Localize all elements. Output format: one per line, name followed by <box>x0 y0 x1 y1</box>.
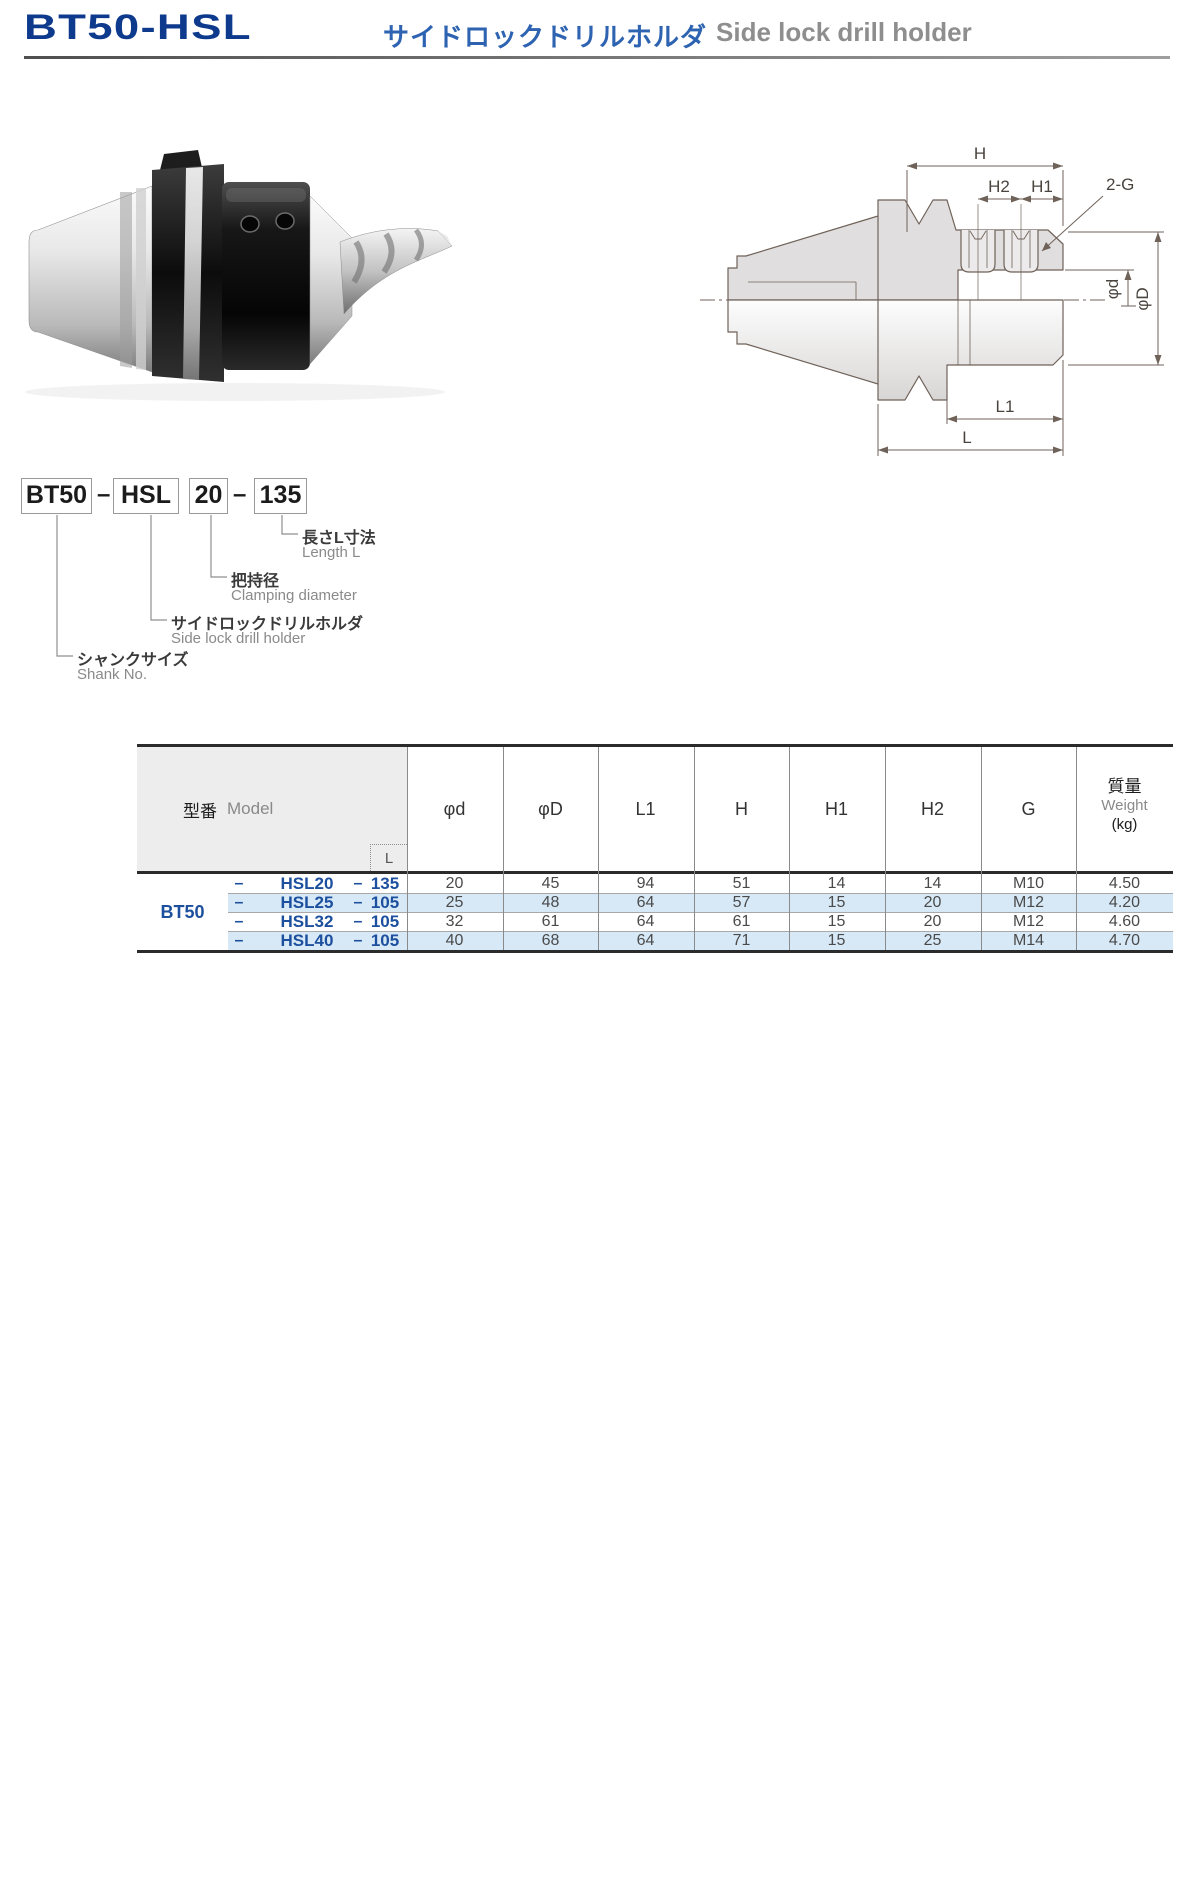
row-dash: – <box>229 931 249 950</box>
dim-label-H2: H2 <box>988 177 1010 196</box>
data-cell: 48 <box>503 893 598 912</box>
header-model-ja: 型番 <box>183 797 217 822</box>
data-cell: 71 <box>694 931 789 950</box>
data-cell: 14 <box>885 874 980 893</box>
length-cell: 105 <box>363 912 407 931</box>
header-L1: L1 <box>598 747 693 871</box>
holder-body-photo <box>222 182 310 370</box>
header-weight-unit: (kg) <box>1076 815 1173 834</box>
data-cell: M10 <box>981 874 1076 893</box>
data-cell: 25 <box>885 931 980 950</box>
model-cell: HSL40 <box>267 931 347 950</box>
model-cell: HSL25 <box>267 893 347 912</box>
data-cell: 68 <box>503 931 598 950</box>
data-cell: 20 <box>407 874 502 893</box>
data-cell: 57 <box>694 893 789 912</box>
data-cell: 61 <box>503 912 598 931</box>
set-screw-photo <box>241 216 259 232</box>
data-cell: 20 <box>885 893 980 912</box>
data-cell: 51 <box>694 874 789 893</box>
header-H2: H2 <box>885 747 980 871</box>
data-cell: 94 <box>598 874 693 893</box>
header-H: H <box>694 747 789 871</box>
data-cell: 4.20 <box>1076 893 1173 912</box>
product-photo <box>0 130 470 415</box>
model-cell: HSL32 <box>267 912 347 931</box>
data-cell: M14 <box>981 931 1076 950</box>
data-cell: 4.70 <box>1076 931 1173 950</box>
dim-label-H1: H1 <box>1031 177 1053 196</box>
data-cell: 64 <box>598 912 693 931</box>
data-cell: 40 <box>407 931 502 950</box>
data-cell: 45 <box>503 874 598 893</box>
length-cell: 135 <box>363 874 407 893</box>
data-cell: 64 <box>598 931 693 950</box>
header-H1: H1 <box>789 747 884 871</box>
data-cell: 15 <box>789 931 884 950</box>
header-weight-ja: 質量 <box>1076 777 1173 796</box>
data-cell: 14 <box>789 874 884 893</box>
shank-cell: BT50 <box>137 874 228 950</box>
callout-shank-en: Shank No. <box>77 666 147 683</box>
dim-label-L1: L1 <box>996 397 1015 416</box>
dim-label-H: H <box>974 144 986 163</box>
data-cell: 15 <box>789 912 884 931</box>
row-dash: – <box>229 912 249 931</box>
set-screw-photo <box>276 213 294 229</box>
page-title: BT50-HSL <box>24 8 252 48</box>
length-cell: 105 <box>363 893 407 912</box>
dim-label-phiD: φD <box>1133 287 1152 310</box>
taper-shank-photo <box>29 186 152 372</box>
data-cell: M12 <box>981 912 1076 931</box>
table-border-bottom <box>137 950 1173 953</box>
page-subtitle-japanese: サイドロックドリルホルダ <box>383 17 707 54</box>
catalog-page: BT50-HSL サイドロックドリルホルダ Side lock drill ho… <box>0 0 1194 1880</box>
dim-label-phid: φd <box>1103 279 1122 299</box>
callout-length-en: Length L <box>302 544 360 561</box>
outside-lower-half <box>728 300 1063 400</box>
dim-label-2G: 2-G <box>1106 175 1134 194</box>
header-G: G <box>981 747 1076 871</box>
callout-type-en: Side lock drill holder <box>171 630 305 647</box>
row-dash: – <box>229 874 249 893</box>
data-cell: 61 <box>694 912 789 931</box>
header-model-en: Model <box>227 799 273 819</box>
spec-table: 型番 Model L φd φD L1 H H1 H2 G 質量 Weight … <box>137 744 1173 953</box>
photo-shadow <box>25 383 445 401</box>
data-cell: 4.60 <box>1076 912 1173 931</box>
header-phid: φd <box>407 747 502 871</box>
length-cell: 105 <box>363 931 407 950</box>
dim-label-L: L <box>962 428 971 447</box>
data-cell: 64 <box>598 893 693 912</box>
technical-drawing: H H2 H1 2-G φd φD L1 L <box>585 110 1185 475</box>
header-L-box: L <box>370 844 407 871</box>
header-phiD: φD <box>503 747 598 871</box>
data-cell: M12 <box>981 893 1076 912</box>
data-cell: 15 <box>789 893 884 912</box>
callout-diameter-en: Clamping diameter <box>231 587 357 604</box>
data-cell: 4.50 <box>1076 874 1173 893</box>
data-cell: 20 <box>885 912 980 931</box>
page-subtitle-english: Side lock drill holder <box>716 17 972 48</box>
row-dash: – <box>229 893 249 912</box>
data-cell: 25 <box>407 893 502 912</box>
model-cell: HSL20 <box>267 874 347 893</box>
header-weight-en: Weight <box>1076 796 1173 815</box>
data-cell: 32 <box>407 912 502 931</box>
header-divider <box>24 56 1170 59</box>
